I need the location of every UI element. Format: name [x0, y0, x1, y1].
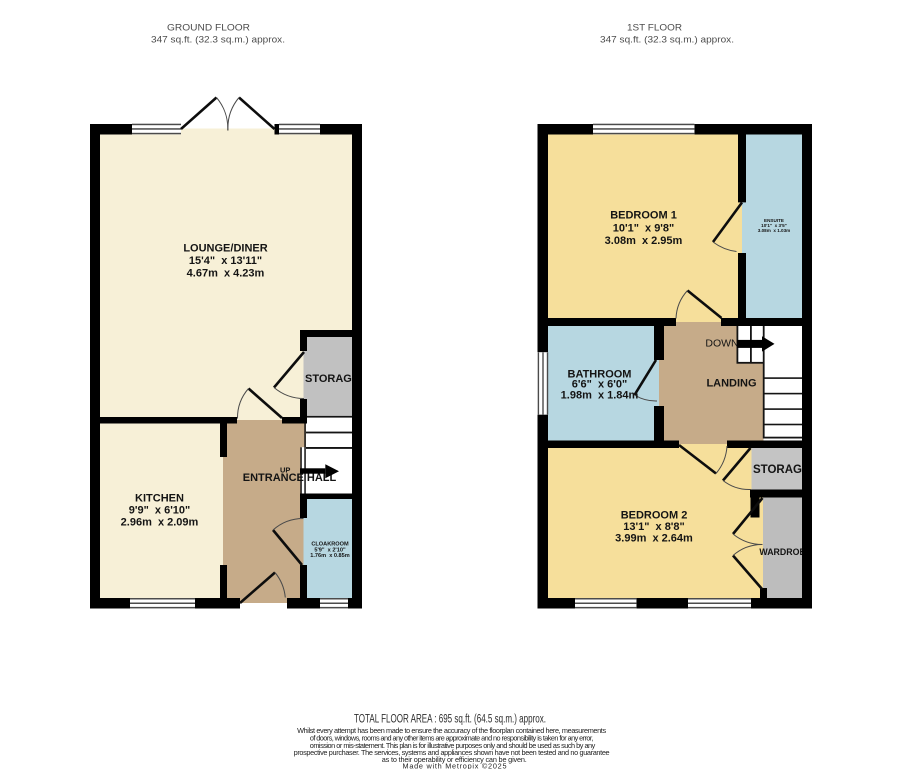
svg-text:1ST FLOOR: 1ST FLOOR	[627, 23, 682, 33]
svg-text:CLOAKROOM: CLOAKROOM	[311, 542, 349, 548]
svg-text:LOUNGE/DINER: LOUNGE/DINER	[183, 242, 267, 254]
svg-text:15'4" x 13'11": 15'4" x 13'11"	[189, 255, 262, 267]
svg-text:3.99m x 2.64m: 3.99m x 2.64m	[615, 533, 693, 545]
svg-text:9'9" x 6'10": 9'9" x 6'10"	[129, 505, 191, 517]
svg-text:1.76m x 0.85m: 1.76m x 0.85m	[310, 553, 350, 559]
svg-text:DOWN: DOWN	[705, 337, 738, 349]
svg-text:347 sq.ft. (32.3 sq.m.) approx: 347 sq.ft. (32.3 sq.m.) approx.	[600, 35, 734, 45]
svg-text:3.08m x 1.03m: 3.08m x 1.03m	[758, 228, 790, 233]
svg-text:STORAGE: STORAGE	[305, 373, 359, 385]
svg-text:KITCHEN: KITCHEN	[135, 493, 184, 505]
svg-text:1.98m x 1.84m: 1.98m x 1.84m	[561, 390, 639, 402]
svg-text:STORAGE: STORAGE	[753, 464, 810, 476]
svg-text:BEDROOM 1: BEDROOM 1	[610, 210, 677, 222]
svg-text:10'1" x 9'8": 10'1" x 9'8"	[613, 223, 675, 235]
svg-text:4.67m x 4.23m: 4.67m x 4.23m	[187, 268, 265, 280]
svg-text:Made with Metropix ©2025: Made with Metropix ©2025	[403, 762, 507, 769]
svg-text:BEDROOM 2: BEDROOM 2	[621, 509, 688, 521]
svg-text:3.08m x 2.95m: 3.08m x 2.95m	[605, 235, 683, 247]
svg-text:347 sq.ft. (32.3 sq.m.) approx: 347 sq.ft. (32.3 sq.m.) approx.	[151, 35, 285, 45]
svg-text:GROUND FLOOR: GROUND FLOOR	[167, 23, 250, 33]
svg-text:LANDING: LANDING	[706, 378, 756, 390]
svg-text:TOTAL FLOOR AREA : 695 sq.ft.: TOTAL FLOOR AREA : 695 sq.ft. (64.5 sq.m…	[354, 713, 546, 725]
svg-text:UP: UP	[280, 466, 290, 475]
svg-text:13'1" x 8'8": 13'1" x 8'8"	[623, 521, 685, 533]
svg-text:2.96m x 2.09m: 2.96m x 2.09m	[121, 516, 199, 528]
